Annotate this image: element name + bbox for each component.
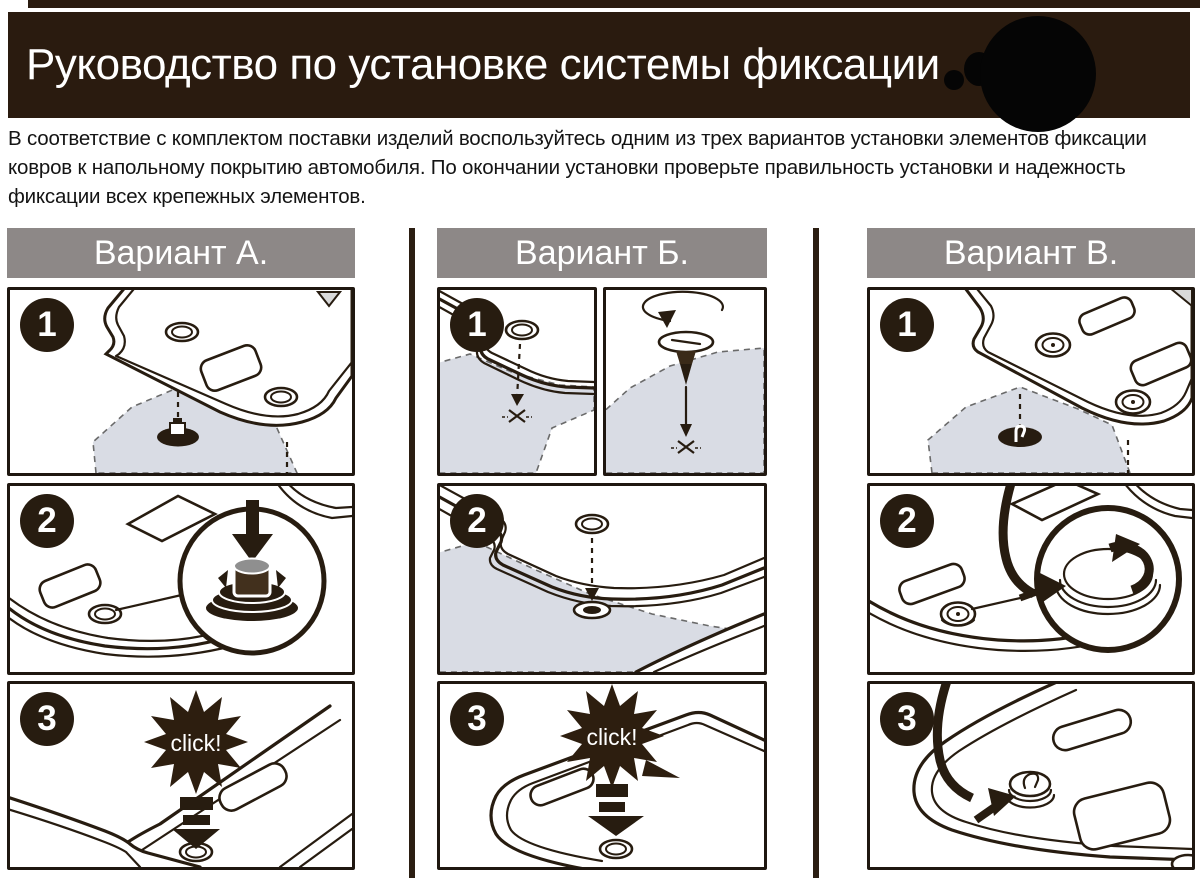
snap-button-icon (576, 515, 608, 533)
step-panel-a1: 1 (7, 287, 355, 476)
press-arrow-icon (596, 784, 628, 797)
step-panel-c2: 2 (867, 483, 1195, 675)
press-arrow-icon (246, 500, 259, 538)
intro-text: В соответствие с комплектом поставки изд… (8, 124, 1194, 211)
step-badge: 2 (880, 494, 934, 548)
step-badge: 2 (20, 494, 74, 548)
variant-label: Вариант Б. (515, 234, 689, 272)
column-divider (409, 228, 415, 878)
manual-page: Руководство по установке системы фиксаци… (0, 0, 1200, 889)
step-panel-b1-left: 1 (437, 287, 597, 476)
floor-hook-receiver-icon (998, 427, 1042, 447)
grommet-icon (1116, 391, 1150, 414)
variant-column-c: Вариант В. 1 (867, 228, 1195, 878)
variant-header-b: Вариант Б. (437, 228, 767, 278)
step-badge: 1 (880, 298, 934, 352)
variant-label: Вариант А. (94, 234, 268, 272)
header-bar: Руководство по установке системы фиксаци… (8, 12, 1190, 118)
step-badge: 1 (20, 298, 74, 352)
step-badge: 1 (450, 298, 504, 352)
redacted-logo-icon (980, 16, 1096, 132)
variant-label: Вариант В. (944, 234, 1118, 272)
grommet-icon (1036, 334, 1070, 357)
snap-button-icon (600, 840, 632, 858)
step-panel-a3: click! 3 (7, 681, 355, 870)
step-panel-c1: 1 (867, 287, 1195, 476)
logo-dot-icon (944, 70, 964, 90)
step-panel-b2: 2 (437, 483, 767, 675)
snap-button-icon (166, 323, 198, 341)
snap-button-icon (506, 321, 538, 339)
click-label: click! (586, 724, 637, 750)
rotation-arrow-icon (643, 292, 723, 321)
variant-header-a: Вариант А. (7, 228, 355, 278)
magnifier-circle (1037, 508, 1179, 650)
step-badge: 3 (450, 692, 504, 746)
step-panel-b3: click! 3 (437, 681, 767, 870)
top-edge-strip (28, 0, 1200, 8)
click-label: click! (170, 730, 221, 756)
column-divider (813, 228, 819, 878)
step-badge: 3 (880, 692, 934, 746)
snap-button-icon (89, 605, 121, 623)
snap-button-icon (265, 388, 297, 406)
step-badge: 3 (20, 692, 74, 746)
step-panel-c3: 3 (867, 681, 1195, 870)
variant-column-a: Вариант А. 1 (7, 228, 355, 878)
step-panel-a2: 2 (7, 483, 355, 675)
variant-column-b: Вариант Б. 1 (437, 228, 767, 878)
illustration-b1-screw-in (606, 290, 764, 473)
clip-top-icon (234, 559, 270, 574)
press-arrow-icon (180, 797, 213, 810)
strap-icon (937, 684, 972, 798)
step-panel-b1-right (603, 287, 767, 476)
variant-header-c: Вариант В. (867, 228, 1195, 278)
hook-fastener-icon (1010, 772, 1050, 796)
page-title: Руководство по установке системы фиксаци… (26, 12, 940, 118)
step-badge: 2 (450, 494, 504, 548)
